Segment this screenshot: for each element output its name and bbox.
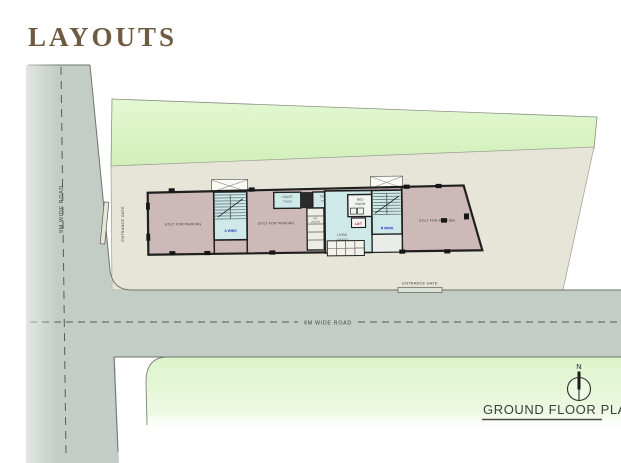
lawn-area-bottom: [146, 357, 621, 432]
column: [146, 203, 150, 210]
layout-sheet: LAYOUTS ENTRANCE GATE ENTRANCE GATE 9M W…: [0, 0, 621, 463]
living-room-name: LIVING: [337, 233, 348, 237]
parking-middle-label: STILT FOR PARKING: [258, 221, 295, 225]
lift-label: LIFT: [355, 222, 362, 226]
parking-left-label: STILT FOR PARKING: [165, 222, 202, 226]
column: [269, 250, 275, 254]
column: [204, 251, 210, 255]
stair-b-passage: [372, 234, 402, 252]
column: [146, 234, 150, 241]
kitchen-shaft-strip: [307, 208, 324, 250]
toilet-1-name: TOILET: [282, 195, 293, 199]
bed-room-name2: ROOM: [355, 202, 365, 206]
left-gate-label: ENTRANCE GATE: [120, 206, 125, 242]
road-left-label: 9M WIDE ROAD: [59, 185, 65, 233]
kitchen-dims: 2'6X7'0: [311, 220, 320, 224]
column: [169, 188, 175, 192]
column: [249, 187, 255, 191]
road-bottom-label: 6M WIDE ROAD: [304, 321, 352, 327]
duct-wall-block: [301, 192, 313, 208]
left-edge-fade: [0, 58, 58, 463]
column: [441, 218, 447, 223]
column: [404, 185, 410, 189]
plan-name: GROUND FLOOR PLAN: [483, 402, 621, 417]
north-label: N: [576, 362, 581, 371]
page-title: LAYOUTS: [28, 22, 177, 52]
column: [464, 213, 469, 219]
bottom-gate-symbol: [398, 287, 442, 292]
column: [399, 249, 405, 253]
column: [169, 251, 175, 255]
column: [444, 249, 450, 253]
ground-floor-plan-drawing: LAYOUTS ENTRANCE GATE ENTRANCE GATE 9M W…: [0, 0, 621, 463]
stair-a-label: A WING: [224, 229, 237, 233]
stair-b-label: B WING: [381, 226, 394, 230]
toilet-1-dims: 7'0X5'0: [283, 199, 292, 203]
column: [436, 184, 442, 188]
bottom-gate-label: ENTRANCE GATE: [402, 281, 438, 286]
parking-right-label: STILT FOR PARKING: [419, 219, 456, 223]
